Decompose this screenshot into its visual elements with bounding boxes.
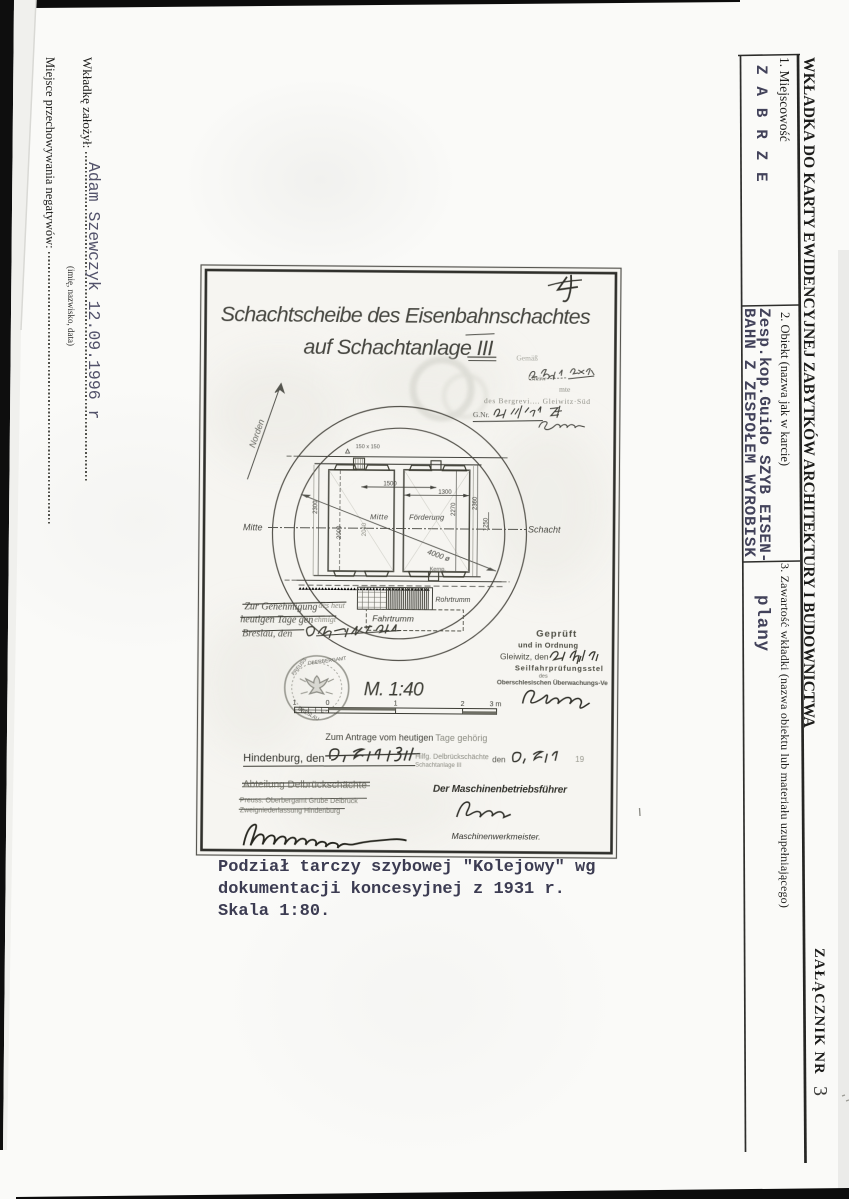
svg-text:G.Nr.: G.Nr. <box>473 410 490 419</box>
svg-text:Gleiwitz, den: Gleiwitz, den <box>500 651 549 661</box>
svg-text:Der Maschinenbetriebsführer: Der Maschinenbetriebsführer <box>433 784 568 796</box>
svg-text:2000: 2000 <box>337 525 343 539</box>
svg-text:Schachtscheibe des Eisenbahnsc: Schachtscheibe des Eisenbahnschachtes <box>221 302 591 329</box>
svg-text:Schachtanlage III: Schachtanlage III <box>415 763 462 769</box>
svg-text:150 x 150: 150 x 150 <box>356 444 380 450</box>
svg-text:auf Schachtanlage III: auf Schachtanlage III <box>303 335 493 360</box>
svg-text:Zum Antrage vom heutigen: Zum Antrage vom heutigen <box>325 732 433 743</box>
svg-text:Geprüft: Geprüft <box>536 629 577 640</box>
svg-text:Tage gehörig: Tage gehörig <box>435 733 487 743</box>
svg-text:Abteilung Delbrückschächte: Abteilung Delbrückschächte <box>243 779 367 791</box>
svg-text:Rohrtrumm: Rohrtrumm <box>435 597 470 604</box>
svg-text:1500: 1500 <box>383 481 397 487</box>
svg-text:2: 2 <box>461 701 465 708</box>
svg-text:1: 1 <box>293 700 297 707</box>
svg-text:2300: 2300 <box>313 500 319 514</box>
svg-text:Maschinenwerkmeister.: Maschinenwerkmeister. <box>452 831 541 842</box>
svg-text:mte: mte <box>559 385 571 394</box>
svg-text:1250: 1250 <box>483 517 489 531</box>
svg-text:den: den <box>492 755 505 764</box>
svg-text:Fahrtrumm: Fahrtrumm <box>372 613 414 623</box>
svg-text:19: 19 <box>575 755 585 764</box>
svg-text:Gemäß: Gemäß <box>516 353 538 362</box>
svg-text:Förderung: Förderung <box>409 513 445 522</box>
svg-text:M. 1:40: M. 1:40 <box>364 679 425 700</box>
svg-text:Kernp.: Kernp. <box>430 567 447 573</box>
svg-text:und in Ordnung: und in Ordnung <box>518 640 578 649</box>
svg-text:Seilfahrprüfungsstel: Seilfahrprüfungsstel <box>515 663 603 673</box>
svg-text:0: 0 <box>326 700 330 707</box>
svg-text:2360: 2360 <box>473 496 479 510</box>
svg-text:Hilfg. Delbrückschächte: Hilfg. Delbrückschächte <box>415 754 489 762</box>
svg-text:Mitte: Mitte <box>243 522 263 532</box>
svg-text:2040: 2040 <box>362 522 368 536</box>
svg-text:des Bergrevi.... Gleiwitz·Süd: des Bergrevi.... Gleiwitz·Süd <box>484 396 590 406</box>
svg-text:1: 1 <box>394 700 398 707</box>
svg-text:1300: 1300 <box>438 490 452 496</box>
svg-text:Hindenburg, den: Hindenburg, den <box>243 752 324 765</box>
svg-text:Mitte: Mitte <box>370 512 388 521</box>
svg-text:Schacht: Schacht <box>528 525 561 535</box>
svg-text:2270: 2270 <box>451 502 457 516</box>
svg-text:3 m: 3 m <box>490 701 502 708</box>
